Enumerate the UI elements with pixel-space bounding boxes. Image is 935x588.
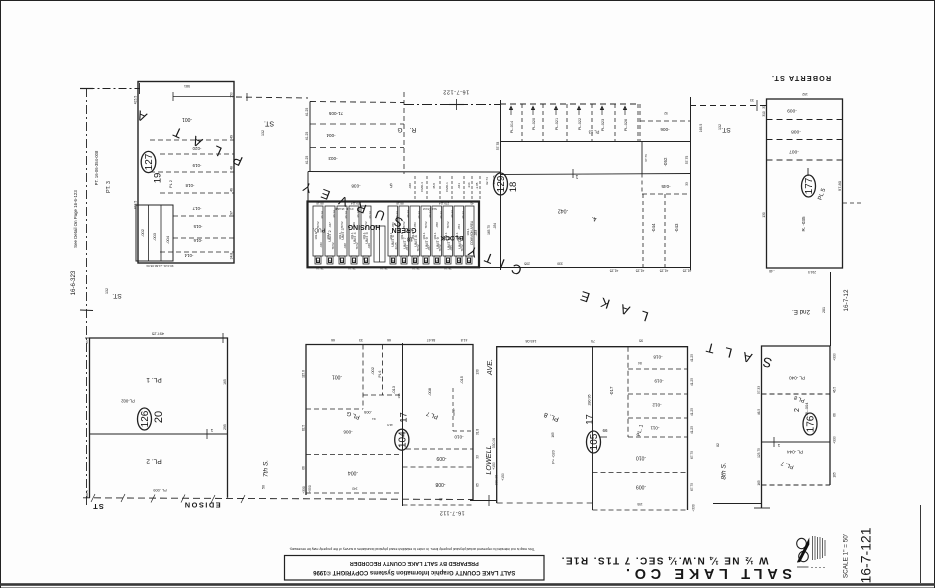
svg-text:41.25: 41.25: [305, 156, 309, 165]
svg-text:127: 127: [144, 153, 155, 170]
svg-text:34.8: 34.8: [230, 253, 234, 260]
svg-text:57.75: 57.75: [685, 156, 689, 165]
svg-text:4.: 4.: [591, 215, 596, 221]
svg-text:PL-014: PL-014: [510, 121, 514, 133]
svg-text:+150: +150: [492, 462, 496, 470]
svg-text:PL 7: PL 7: [425, 409, 439, 419]
svg-text:82.5: 82.5: [302, 425, 306, 431]
svg-text:PL -044: PL -044: [787, 450, 803, 455]
svg-text:ST.: ST.: [721, 126, 731, 133]
svg-text:67.76: 67.76: [644, 154, 648, 162]
svg-text:-043: -043: [674, 223, 679, 232]
svg-text:16-7-121: 16-7-121: [858, 527, 874, 583]
svg-text:PL. 1: PL. 1: [146, 376, 162, 383]
svg-text:165.5: 165.5: [699, 124, 703, 133]
svg-text:PL-022: PL-022: [578, 118, 582, 130]
svg-text:132: 132: [261, 130, 265, 136]
svg-text:71-005: 71-005: [328, 111, 343, 116]
svg-text:1: 1: [210, 428, 213, 433]
svg-text:PL. 1: PL. 1: [636, 424, 645, 437]
svg-text:-040: -040: [408, 183, 412, 189]
svg-text:16-7-12: 16-7-12: [843, 289, 850, 311]
svg-text:+330: +330: [833, 436, 837, 444]
svg-text:-010: -010: [636, 455, 646, 461]
svg-text:-018: -018: [185, 183, 194, 188]
svg-text:75: 75: [591, 339, 595, 343]
svg-text:41.25: 41.25: [690, 354, 694, 362]
svg-text:16-6-323: 16-6-323: [70, 270, 77, 295]
svg-text:26: 26: [85, 340, 89, 344]
svg-text:EDISON: EDISON: [183, 501, 220, 510]
svg-text:-019: -019: [654, 379, 664, 384]
svg-text:UNIT 8: UNIT 8: [414, 235, 418, 246]
svg-text:PL-002: PL-002: [121, 399, 135, 404]
svg-text:30-0.21 +4-60.06 04: 30-0.21 +4-60.06 04: [146, 264, 173, 268]
svg-text:192: 192: [802, 92, 808, 96]
svg-text:UNIT 9: UNIT 9: [436, 237, 440, 248]
svg-text:PL -040: PL -040: [789, 376, 805, 381]
svg-text:PL 2: PL 2: [168, 179, 173, 188]
svg-text:-009: -009: [436, 455, 446, 461]
svg-text:-009: -009: [787, 108, 797, 114]
svg-text:195: 195: [637, 502, 643, 506]
svg-text:-017: -017: [192, 206, 201, 211]
svg-text:UNIT 10: UNIT 10: [447, 236, 451, 249]
svg-text:-038: -038: [351, 184, 361, 189]
svg-text:+330: +330: [302, 486, 306, 493]
svg-text:279.114: 279.114: [438, 202, 449, 206]
svg-text:-019: -019: [192, 163, 201, 168]
svg-text:See Detail On Page 16-6-123: See Detail On Page 16-6-123: [73, 190, 78, 248]
svg-text:This map is not intended to re: This map is not intended to represent ac…: [289, 547, 534, 551]
svg-text:48: 48: [230, 166, 234, 170]
svg-text:165: 165: [223, 379, 227, 385]
svg-text:26.14: 26.14: [412, 267, 420, 271]
svg-text:18: 18: [508, 182, 519, 193]
svg-text:330.06: 330.06: [492, 438, 496, 448]
svg-text:33: 33: [685, 182, 689, 186]
svg-text:5: 5: [389, 182, 392, 188]
svg-text:49: 49: [230, 135, 234, 139]
svg-text:PREPARED BY SALT LAKE COUNTY R: PREPARED BY SALT LAKE COUNTY RECORDER: [350, 560, 479, 566]
svg-text:-020: -020: [192, 146, 201, 151]
svg-text:581: 581: [184, 84, 190, 88]
svg-text:-017: -017: [609, 386, 614, 395]
svg-text:16-7-112: 16-7-112: [439, 510, 464, 516]
svg-text:41.25: 41.25: [636, 269, 645, 273]
svg-text:-004: -004: [165, 235, 170, 244]
svg-text:123.75: 123.75: [757, 448, 761, 458]
svg-text:PL-023: PL-023: [601, 119, 605, 131]
svg-text:78.52: 78.52: [446, 221, 450, 228]
svg-text:84.67: 84.67: [452, 408, 456, 416]
svg-text:41.25: 41.25: [690, 378, 694, 386]
svg-text:PT. 3: PT. 3: [106, 181, 112, 193]
svg-text:PL 6: PL 6: [378, 370, 382, 377]
svg-text:234: 234: [467, 182, 471, 187]
svg-text:-012: -012: [652, 403, 662, 408]
svg-text:132: 132: [718, 124, 722, 130]
svg-text:66: 66: [331, 338, 335, 342]
svg-text:UNIT 7: UNIT 7: [403, 237, 407, 248]
svg-text:HOUSING: HOUSING: [347, 223, 380, 230]
svg-text:-008: -008: [427, 387, 432, 396]
svg-text:-011: -011: [650, 426, 659, 431]
svg-text:26.14: 26.14: [439, 211, 443, 219]
svg-text:295: 295: [223, 424, 227, 430]
svg-text:/11: /11: [372, 417, 376, 421]
svg-text:130: 130: [476, 369, 480, 375]
svg-text:165: 165: [833, 472, 837, 478]
svg-text:-041: -041: [457, 183, 461, 189]
svg-text:PL-026: PL-026: [624, 119, 628, 131]
svg-text:-002: -002: [140, 228, 145, 237]
svg-text:97: 97: [230, 211, 234, 215]
svg-text:497.25: 497.25: [151, 332, 164, 337]
svg-text:165: 165: [551, 432, 555, 438]
svg-text:19: 19: [153, 173, 164, 184]
svg-text:UNIT 5: UNIT 5: [365, 232, 369, 243]
svg-text:26.14: 26.14: [348, 267, 356, 271]
svg-text:20: 20: [153, 411, 165, 423]
svg-text:-034: -034: [493, 223, 497, 230]
svg-text:P+ -020: P+ -020: [552, 450, 556, 463]
svg-text:16-7-122: 16-7-122: [443, 89, 469, 95]
svg-text:-042: -042: [558, 208, 568, 214]
svg-text:PL. 2: PL. 2: [146, 458, 162, 465]
svg-text:46: 46: [230, 188, 234, 192]
svg-text:SCALE 1" = 50': SCALE 1" = 50': [843, 534, 850, 578]
svg-text:UNIT 4: UNIT 4: [353, 232, 357, 243]
svg-text:66: 66: [833, 413, 837, 417]
svg-text:57.78: 57.78: [496, 142, 500, 151]
svg-text:26.14: 26.14: [332, 210, 336, 218]
svg-text:-058: -058: [435, 222, 439, 228]
svg-text:PL 13: PL 13: [588, 130, 599, 135]
svg-text:-003: -003: [152, 232, 157, 241]
svg-text:26.14: 26.14: [417, 211, 421, 219]
svg-text:26.14: 26.14: [461, 211, 465, 219]
svg-text:41.25: 41.25: [690, 426, 694, 434]
svg-text:PL -009: PL -009: [153, 488, 166, 492]
svg-text:PLAT A: PLAT A: [122, 102, 245, 169]
svg-text:40: 40: [439, 497, 443, 501]
svg-text:1: 1: [777, 443, 780, 448]
svg-text:130: 130: [762, 212, 766, 218]
svg-text:33: 33: [750, 98, 754, 102]
svg-text:330: 330: [557, 262, 563, 266]
svg-text:+330: +330: [833, 353, 837, 361]
svg-text:41.25: 41.25: [305, 132, 309, 141]
svg-text:-005: -005: [363, 410, 372, 415]
svg-text:-002: -002: [370, 366, 375, 375]
svg-text:177: 177: [804, 177, 815, 194]
svg-text:176: 176: [806, 415, 817, 432]
svg-text:-001: -001: [332, 374, 342, 380]
svg-text:-003: -003: [328, 156, 338, 161]
svg-text:CITY: CITY: [458, 240, 524, 278]
svg-text:295: 295: [524, 262, 530, 266]
svg-text:57.33: 57.33: [757, 386, 761, 394]
svg-text:PL G: PL G: [346, 409, 361, 419]
svg-text:26.14: 26.14: [450, 210, 454, 218]
svg-text:CMO-1: CMO-1: [445, 182, 449, 192]
svg-text:78.52: 78.52: [331, 242, 335, 249]
svg-text:-014: -014: [184, 253, 193, 258]
svg-text:188.75: 188.75: [492, 175, 496, 185]
svg-text:17: 17: [585, 414, 596, 425]
svg-text:-008: -008: [435, 481, 445, 487]
svg-text:66: 66: [302, 466, 306, 470]
svg-text:45.8: 45.8: [432, 183, 436, 189]
svg-text:95: 95: [639, 339, 643, 343]
svg-text:-.48: -.48: [769, 269, 775, 273]
svg-text:UNIT 3: UNIT 3: [341, 228, 345, 239]
svg-text:8th S.: 8th S.: [721, 462, 728, 479]
svg-text:46.5: 46.5: [833, 387, 837, 393]
svg-text:65: 65: [476, 483, 480, 487]
svg-text:26.14: 26.14: [316, 267, 324, 271]
svg-text:41.25: 41.25: [690, 408, 694, 416]
svg-text:-044: -044: [651, 223, 656, 232]
svg-text:17: 17: [399, 412, 410, 423]
svg-text:-006: -006: [343, 430, 353, 435]
svg-text:SALT LAKE COUNTY Graphic Info: SALT LAKE COUNTY Graphic Information Sys…: [312, 569, 515, 576]
svg-text:132: 132: [105, 288, 109, 294]
svg-text:-018: -018: [653, 355, 663, 360]
svg-text:78.52: 78.52: [340, 221, 344, 228]
svg-text:-009: -009: [636, 484, 646, 490]
svg-text:ST: ST: [92, 502, 103, 511]
svg-text:126: 126: [140, 410, 151, 427]
svg-text:143: 143: [352, 487, 358, 491]
svg-text:-052: -052: [663, 157, 668, 166]
svg-text:165: 165: [757, 480, 761, 486]
svg-text:99: 99: [602, 428, 607, 433]
svg-text:-008: -008: [791, 129, 801, 135]
svg-text:-048: -048: [343, 243, 347, 249]
svg-text:-006: -006: [660, 127, 670, 132]
svg-text:ST.: ST.: [112, 292, 122, 299]
svg-text:33: 33: [762, 105, 766, 109]
svg-text:PL 8: PL 8: [793, 394, 805, 403]
svg-text:300.5: 300.5: [85, 490, 89, 498]
svg-text:G: G: [397, 126, 402, 133]
svg-text:2nd E.: 2nd E.: [792, 308, 810, 315]
svg-text:104: 104: [397, 431, 408, 448]
svg-text:-045: -045: [661, 184, 671, 189]
svg-text:UNIT 2: UNIT 2: [328, 230, 332, 241]
svg-text:LAKE: LAKE: [567, 284, 650, 324]
svg-text:-3.05: -3.05: [475, 182, 479, 189]
svg-text:-016: -016: [193, 238, 202, 243]
svg-text:84: 84: [638, 361, 642, 365]
svg-text:-047: -047: [328, 222, 332, 228]
svg-text:31.8: 31.8: [476, 429, 480, 435]
svg-text:1: 1: [575, 173, 578, 179]
svg-text:UNIT 9: UNIT 9: [425, 237, 429, 248]
svg-text:33: 33: [476, 455, 480, 459]
svg-text:33: 33: [359, 338, 363, 342]
svg-text:+330: +330: [692, 504, 696, 511]
svg-text:-046: -046: [319, 242, 323, 248]
svg-text:-001: -001: [182, 116, 192, 122]
svg-text:26.14: 26.14: [380, 267, 388, 271]
svg-text:26.14: 26.14: [428, 210, 432, 218]
svg-text:50: 50: [262, 485, 266, 489]
svg-text:R. -035: R. -035: [801, 216, 806, 232]
svg-text:UNIT 6: UNIT 6: [391, 235, 395, 246]
svg-text:165.75: 165.75: [487, 225, 491, 235]
svg-text:280.95: 280.95: [588, 395, 592, 406]
svg-text:-004: -004: [326, 133, 336, 138]
svg-text:45: 45: [470, 202, 474, 206]
svg-text:150: 150: [230, 92, 234, 98]
svg-text:PL. 8: PL. 8: [543, 411, 560, 423]
svg-text:41.25: 41.25: [305, 108, 309, 117]
svg-text:41.8: 41.8: [461, 338, 468, 342]
svg-text:PL. 7: PL. 7: [780, 460, 794, 470]
svg-text:26.14: 26.14: [444, 267, 452, 271]
svg-text:7th S.: 7th S.: [263, 460, 270, 477]
svg-text:115.8: 115.8: [302, 370, 306, 378]
svg-text:-054: -054: [457, 224, 461, 230]
svg-text:R.: R.: [410, 126, 417, 133]
svg-text:26.14: 26.14: [320, 211, 324, 219]
svg-text:41.25: 41.25: [660, 269, 669, 273]
svg-text:PL-020: PL-020: [532, 118, 536, 130]
svg-text:67.75: 67.75: [690, 451, 694, 459]
svg-text:PT. 16-06-354-008: PT. 16-06-354-008: [94, 150, 99, 185]
svg-text:SALT LAKE CO.: SALT LAKE CO.: [624, 565, 792, 581]
svg-text:-053: -053: [474, 230, 478, 237]
svg-text:-015: -015: [459, 375, 464, 384]
svg-text:41.25: 41.25: [683, 269, 692, 273]
svg-text:2: 2: [794, 408, 801, 412]
svg-text:92: 92: [664, 111, 668, 115]
svg-text:66: 66: [387, 338, 391, 342]
svg-text:67.75: 67.75: [690, 483, 694, 491]
svg-text:-013: -013: [391, 385, 396, 394]
svg-text:88.18: 88.18: [396, 202, 404, 206]
svg-text:-004: -004: [348, 470, 358, 476]
svg-text:281: 281: [822, 307, 826, 313]
svg-text:26.14: 26.14: [406, 210, 410, 218]
svg-text:PL 5: PL 5: [818, 187, 828, 201]
svg-text:216.5: 216.5: [808, 270, 816, 274]
svg-text:129: 129: [496, 175, 507, 192]
svg-text:97.80: 97.80: [837, 180, 842, 191]
svg-text:-007: -007: [789, 149, 799, 155]
svg-text:18: 18: [407, 236, 413, 242]
svg-text:82: 82: [716, 443, 720, 447]
svg-text:78.52: 78.52: [424, 221, 428, 228]
svg-text:26.14: 26.14: [344, 211, 348, 219]
svg-text:CMO-4: CMO-4: [420, 182, 424, 192]
svg-text:84.67: 84.67: [427, 338, 436, 342]
svg-text:418.5: 418.5: [134, 201, 138, 210]
svg-text:AVE.: AVE.: [485, 359, 494, 376]
svg-text:ROBERTA ST.: ROBERTA ST.: [771, 74, 831, 83]
svg-text:+550: +550: [308, 485, 312, 492]
svg-text:105: 105: [589, 433, 600, 450]
svg-text:46.5: 46.5: [757, 409, 761, 415]
svg-text:145.08: 145.08: [526, 339, 537, 343]
svg-text:310: 310: [762, 111, 766, 117]
svg-text:415.5: 415.5: [134, 96, 138, 105]
svg-text:ST.: ST.: [264, 120, 274, 127]
svg-text:92.74: 92.74: [485, 177, 489, 185]
svg-text:41.25: 41.25: [610, 269, 619, 273]
svg-text:-015: -015: [193, 224, 202, 229]
svg-text:44.5: 44.5: [387, 423, 393, 427]
svg-text:-010: -010: [454, 435, 464, 440]
svg-text:+150: +150: [501, 473, 505, 481]
svg-text:PUD.: PUD.: [313, 227, 325, 233]
svg-text:W ½ NE ¼ N.W.¼ SEC. 7 T1S. R1E: W ½ NE ¼ N.W.¼ SEC. 7 T1S. R1E.: [561, 555, 768, 566]
svg-text:PL-021: PL-021: [555, 118, 559, 130]
svg-text:165: 165: [397, 393, 401, 398]
